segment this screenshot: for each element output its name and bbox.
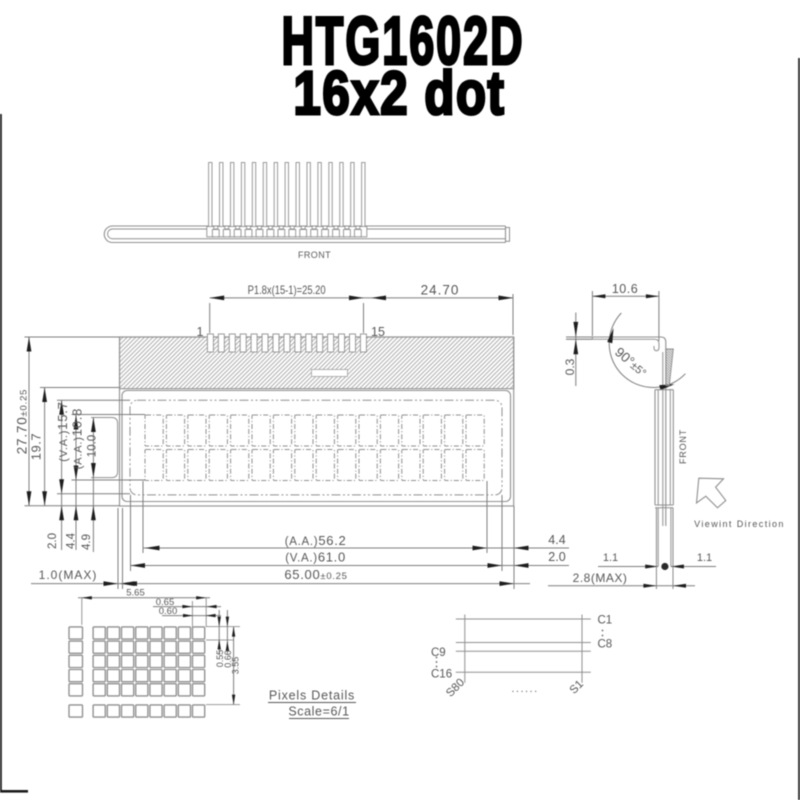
svg-text:FRONT: FRONT bbox=[298, 250, 331, 260]
svg-text:......: ...... bbox=[511, 683, 538, 695]
svg-text:0.60: 0.60 bbox=[159, 606, 178, 617]
svg-text:P1.8x(15-1)=25.20: P1.8x(15-1)=25.20 bbox=[248, 283, 326, 297]
svg-text:10.6: 10.6 bbox=[612, 282, 638, 296]
svg-text:C16: C16 bbox=[431, 669, 452, 681]
svg-text:C9: C9 bbox=[431, 647, 446, 659]
svg-text:15: 15 bbox=[371, 325, 385, 339]
svg-text:Viewint Direction: Viewint Direction bbox=[694, 519, 785, 529]
svg-text:24.70: 24.70 bbox=[421, 283, 460, 298]
svg-text:3.55: 3.55 bbox=[231, 657, 241, 675]
svg-text:(A.A.)10.8: (A.A.)10.8 bbox=[70, 408, 85, 469]
svg-text:4.9: 4.9 bbox=[81, 534, 93, 550]
svg-text:10.0: 10.0 bbox=[87, 435, 99, 457]
svg-text:(V.A.)15.7: (V.A.)15.7 bbox=[55, 401, 70, 461]
svg-text:FRONT: FRONT bbox=[678, 429, 688, 464]
svg-text:4.4: 4.4 bbox=[548, 533, 565, 547]
svg-text:1.1: 1.1 bbox=[603, 552, 618, 564]
svg-text:2.0: 2.0 bbox=[47, 533, 59, 549]
svg-text:5.65: 5.65 bbox=[126, 588, 145, 599]
svg-text:1.1: 1.1 bbox=[697, 552, 712, 564]
svg-text:4.4: 4.4 bbox=[66, 532, 78, 549]
svg-text:C8: C8 bbox=[598, 639, 613, 651]
svg-text:2.0: 2.0 bbox=[548, 550, 565, 564]
svg-text:16x2 dot: 16x2 dot bbox=[294, 59, 506, 127]
svg-text:(A.A.)56.2: (A.A.)56.2 bbox=[285, 533, 347, 548]
svg-text:Pixels Details: Pixels Details bbox=[269, 689, 355, 703]
svg-text:Scale=6/1: Scale=6/1 bbox=[288, 705, 349, 719]
svg-text:1.0(MAX): 1.0(MAX) bbox=[39, 568, 98, 582]
svg-text:0.3: 0.3 bbox=[563, 358, 577, 375]
svg-text:19.7: 19.7 bbox=[29, 433, 44, 460]
svg-text:1: 1 bbox=[197, 325, 204, 339]
svg-text:C1: C1 bbox=[598, 615, 613, 627]
svg-text:(V.A.)61.0: (V.A.)61.0 bbox=[285, 550, 346, 565]
svg-text:2.8(MAX): 2.8(MAX) bbox=[573, 571, 628, 585]
